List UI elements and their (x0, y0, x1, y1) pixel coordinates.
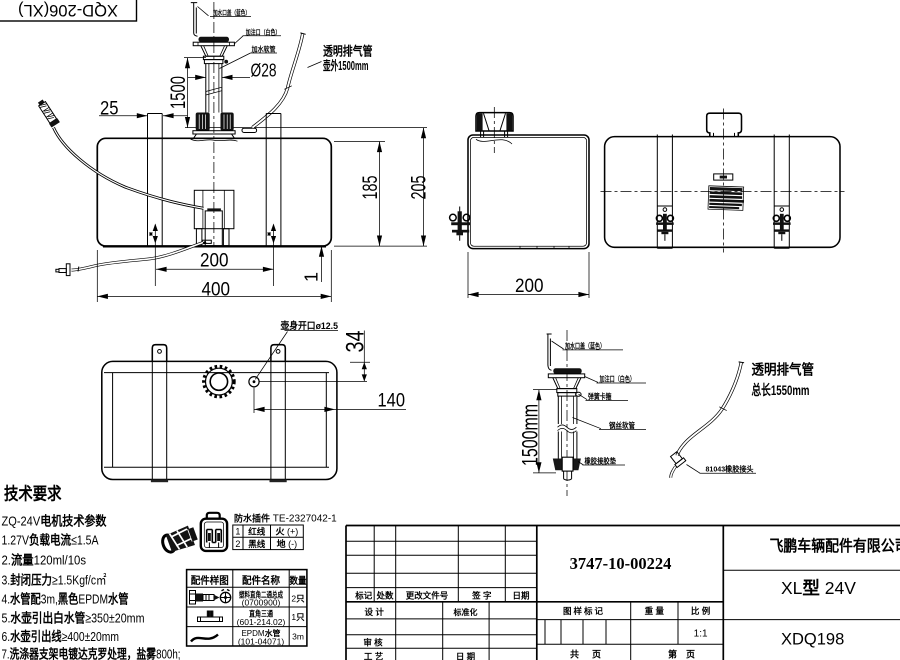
svg-text:处数: 处数 (375, 591, 394, 601)
svg-text:加水口盖（蓝色）: 加水口盖（蓝色） (212, 8, 250, 17)
svg-text:1:1: 1:1 (694, 629, 708, 640)
svg-text:XL型 24V: XL型 24V (781, 578, 856, 598)
svg-text:5.水壶引出白水管≥350±20mm: 5.水壶引出白水管≥350±20mm (2, 611, 145, 626)
svg-text:页: 页 (592, 650, 601, 660)
svg-text:2只: 2只 (291, 594, 305, 604)
svg-text:图样标记: 图样标记 (563, 606, 605, 616)
svg-text:橡胶接胶垫: 橡胶接胶垫 (585, 457, 617, 466)
svg-text:防水插件 TE-2327042-1: 防水插件 TE-2327042-1 (234, 513, 337, 525)
svg-text:81043橡胶接头: 81043橡胶接头 (706, 464, 754, 474)
svg-text:配件名称: 配件名称 (242, 574, 280, 587)
svg-text:200: 200 (200, 251, 229, 272)
svg-text:钢丝软管: 钢丝软管 (608, 421, 635, 430)
svg-text:1: 1 (302, 272, 322, 282)
svg-text:140: 140 (378, 391, 406, 412)
svg-text:1只: 1只 (291, 612, 305, 622)
svg-text:2: 2 (235, 539, 240, 549)
svg-text:设 计: 设 计 (365, 607, 385, 617)
svg-text:加水软管: 加水软管 (251, 45, 276, 54)
svg-text:ZQ-24V电机技术参数: ZQ-24V电机技术参数 (2, 514, 108, 529)
svg-text:6.水壶引出线≥400±20mm: 6.水壶引出线≥400±20mm (2, 629, 120, 644)
svg-text:200: 200 (515, 276, 544, 297)
svg-text:Ø28: Ø28 (251, 61, 277, 81)
svg-text:透明排气管: 透明排气管 (323, 44, 373, 59)
svg-text:第: 第 (668, 649, 677, 660)
svg-text:飞鹏车辆配件有限公司: 飞鹏车辆配件有限公司 (770, 536, 900, 555)
svg-text:重 量: 重 量 (645, 606, 665, 616)
svg-text:页: 页 (686, 650, 695, 660)
svg-text:4.水管配3m,黑色EPDM水管: 4.水管配3m,黑色EPDM水管 (2, 592, 129, 607)
svg-text:配件样图: 配件样图 (191, 574, 229, 587)
svg-text:审 核: 审 核 (363, 638, 383, 648)
svg-text:185: 185 (359, 176, 382, 200)
svg-text:壶外1500mm: 壶外1500mm (323, 58, 369, 73)
svg-text:技术要求: 技术要求 (4, 484, 62, 504)
svg-text:(601-214.02): (601-214.02) (237, 617, 286, 627)
svg-text:3.封闭压力≥1.5Kgf/c㎡: 3.封闭压力≥1.5Kgf/c㎡ (2, 573, 107, 588)
svg-text:205: 205 (408, 176, 431, 200)
svg-text:400: 400 (202, 279, 231, 300)
svg-text:加水口盖（蓝色）: 加水口盖（蓝色） (564, 341, 605, 350)
svg-text:加注口（白色）: 加注口（白色） (245, 27, 280, 36)
svg-text:3m: 3m (292, 632, 304, 642)
svg-text:数量: 数量 (289, 575, 307, 587)
svg-text:3747-10-00224: 3747-10-00224 (570, 554, 672, 573)
svg-text:壶身开口ø12.5: 壶身开口ø12.5 (281, 320, 339, 332)
svg-text:(0700900): (0700900) (242, 598, 281, 608)
svg-text:1500mm: 1500mm (518, 404, 543, 466)
svg-text:地 (-): 地 (-) (277, 538, 298, 549)
svg-text:XQD-206(XL): XQD-206(XL) (18, 1, 118, 19)
svg-text:25: 25 (100, 99, 119, 120)
svg-text:弹簧卡箍: 弹簧卡箍 (588, 392, 612, 401)
svg-text:红线: 红线 (248, 527, 266, 537)
svg-text:7.洗涤器支架电镀达克罗处理，盐雾800h;: 7.洗涤器支架电镀达克罗处理，盐雾800h; (2, 647, 181, 660)
svg-text:比 例: 比 例 (691, 606, 711, 616)
svg-text:签 字: 签 字 (471, 591, 492, 601)
svg-text:标准化: 标准化 (453, 607, 478, 617)
svg-text:34: 34 (342, 330, 370, 352)
svg-text:共: 共 (570, 649, 579, 660)
svg-text:火 (+): 火 (+) (276, 527, 299, 537)
svg-text:日 期: 日 期 (456, 652, 476, 660)
svg-text:日期: 日期 (512, 591, 530, 601)
svg-text:1: 1 (235, 527, 240, 537)
svg-text:1.27V负载电流≤1.5A: 1.27V负载电流≤1.5A (2, 533, 99, 548)
svg-text:工 艺: 工 艺 (364, 652, 384, 660)
svg-text:黑线: 黑线 (248, 539, 266, 549)
svg-text:XDQ198: XDQ198 (781, 631, 844, 649)
svg-text:(101-04071): (101-04071) (238, 637, 284, 647)
svg-text:标记: 标记 (354, 591, 373, 601)
svg-text:更改文件号: 更改文件号 (406, 591, 449, 601)
svg-text:1500: 1500 (167, 76, 190, 109)
svg-text:加注口（白色）: 加注口（白色） (599, 374, 635, 383)
svg-text:透明排气管: 透明排气管 (752, 362, 815, 378)
svg-text:2.流量120ml/10s: 2.流量120ml/10s (2, 553, 87, 568)
svg-text:总长1550mm: 总长1550mm (752, 382, 810, 398)
